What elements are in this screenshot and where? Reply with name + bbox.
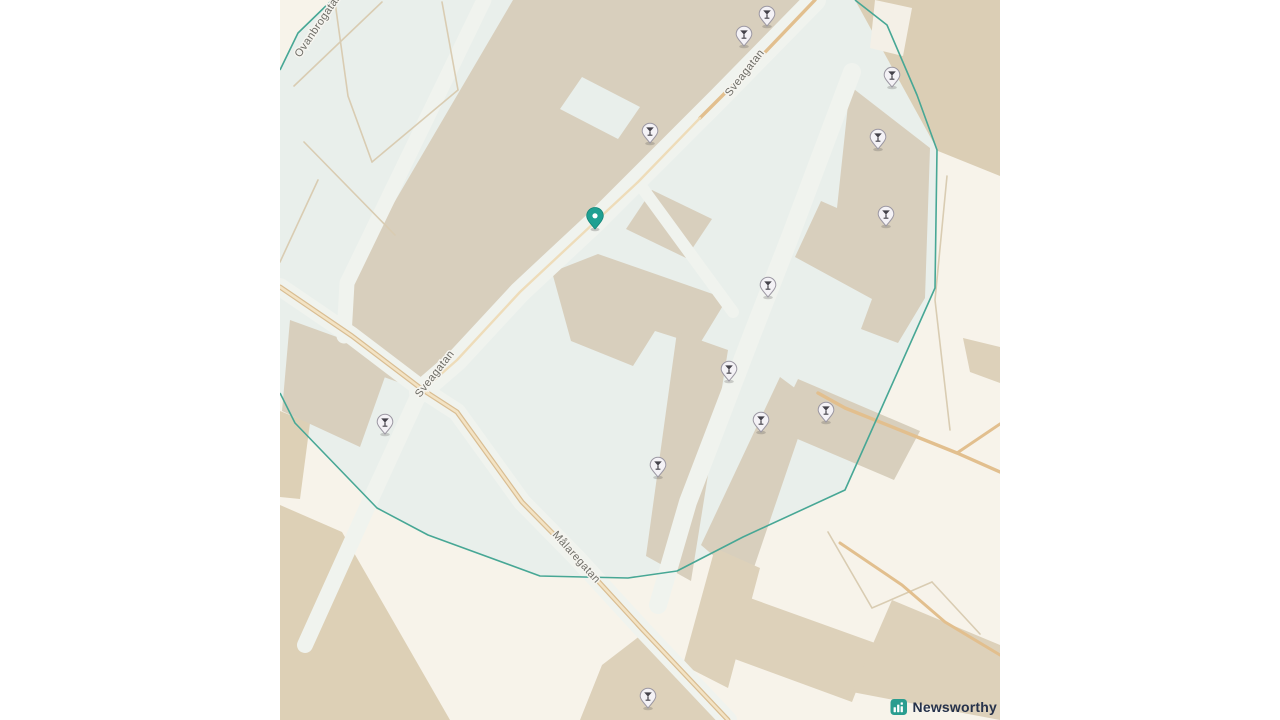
attribution[interactable]: Newsworthy <box>890 698 997 716</box>
attribution-brand: Newsworthy <box>913 699 997 715</box>
map-viewport[interactable]: SveagatanSveagatanMålaregatanOvanbrogata… <box>280 0 1000 720</box>
page: SveagatanSveagatanMålaregatanOvanbrogata… <box>0 0 1280 720</box>
map-canvas[interactable]: SveagatanSveagatanMålaregatanOvanbrogata… <box>280 0 1000 720</box>
newsworthy-logo-icon <box>890 698 908 716</box>
